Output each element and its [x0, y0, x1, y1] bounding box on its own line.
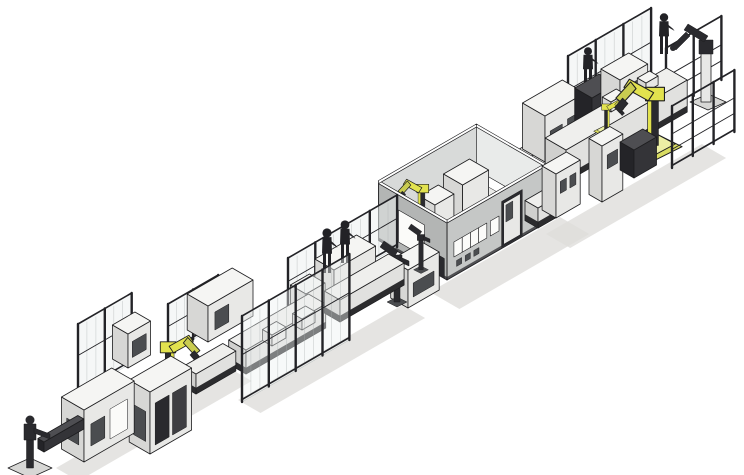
station-tower	[589, 127, 623, 203]
cad-viewport	[0, 0, 744, 475]
main-cabinet-dark-doors	[129, 356, 191, 454]
production-line-illustration	[0, 0, 744, 475]
